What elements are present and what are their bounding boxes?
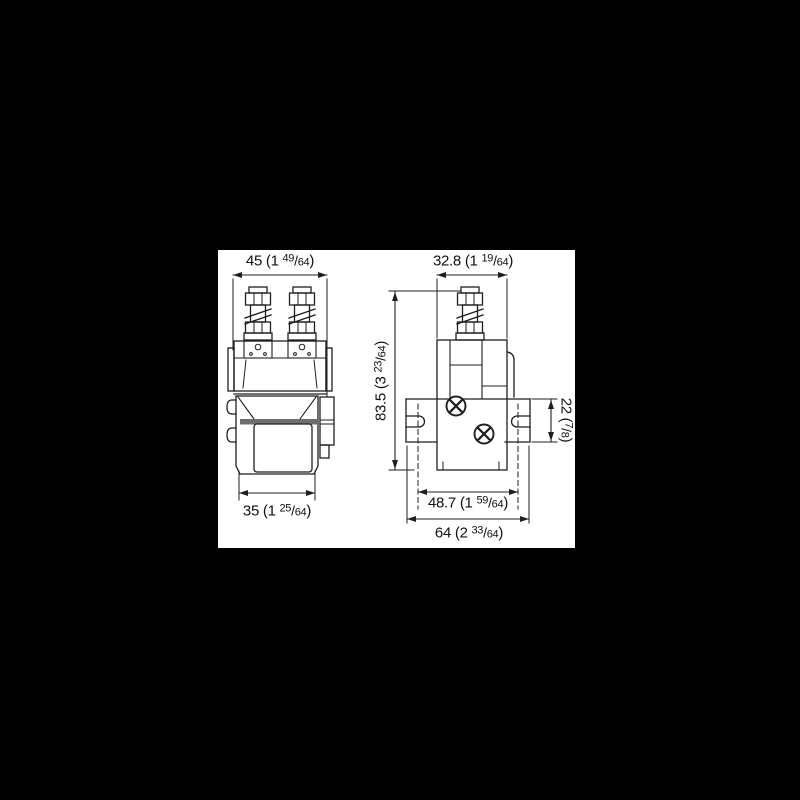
dim-text: 64 (2 — [435, 525, 472, 542]
dim-text: ) — [306, 503, 311, 520]
page-background: 45 (1 49/64) 32.8 (1 19/64) 83.5 (3 23/6… — [0, 0, 800, 800]
fraction-numerator: 7 — [563, 422, 575, 428]
dim-label-bracket-width: 64 (2 33/64) — [435, 526, 503, 541]
dim-text: ) — [373, 341, 390, 346]
dim-text: 22 ( — [558, 398, 575, 423]
fraction-denominator: 64 — [497, 257, 509, 269]
fraction-denominator: 64 — [377, 346, 389, 358]
fraction-numerator: 25 — [279, 503, 291, 515]
slot-right — [512, 416, 531, 427]
fraction-denominator: 64 — [298, 257, 310, 269]
housing — [234, 394, 326, 474]
slot-left — [406, 416, 425, 427]
drawing-panel: 45 (1 49/64) 32.8 (1 19/64) 83.5 (3 23/6… — [218, 250, 575, 548]
fraction-numerator: 19 — [481, 253, 493, 265]
left-bump-top — [227, 400, 236, 414]
terminal-block — [234, 341, 326, 391]
dim-label-side-width-top: 32.8 (1 19/64) — [433, 254, 513, 269]
dim-text: ) — [309, 253, 314, 270]
fraction-numerator: 49 — [282, 253, 294, 265]
dim-text: ) — [498, 525, 503, 542]
mounting-bracket — [406, 399, 530, 442]
side-view — [406, 287, 530, 470]
terminal-stud-left — [244, 287, 272, 340]
fraction-numerator: 59 — [476, 495, 488, 507]
dim-text: 45 (1 — [246, 253, 283, 270]
dim-text: ) — [508, 253, 513, 270]
phillips-screw-icon — [447, 397, 466, 416]
lower-block — [254, 424, 312, 472]
terminal-stud-right — [288, 287, 316, 340]
dim-label-overall-height: 83.5 (3 23/64) — [374, 341, 389, 421]
right-protrusion — [320, 397, 334, 458]
side-strip-left — [228, 348, 234, 391]
front-view — [227, 287, 334, 474]
fraction-numerator: 23 — [373, 361, 385, 373]
dim-text: ) — [558, 438, 575, 443]
dim-text: ) — [503, 495, 508, 512]
fraction-denominator: 64 — [487, 529, 499, 541]
left-bump-bottom — [227, 428, 236, 442]
dim-text: 48.7 (1 — [428, 495, 476, 512]
dimension-lines — [233, 272, 557, 523]
dim-label-front-width-bottom: 35 (1 25/64) — [243, 504, 311, 519]
fraction-denominator: 64 — [295, 507, 307, 519]
dim-label-hole-spacing: 48.7 (1 59/64) — [428, 496, 508, 511]
dim-label-bracket-height: 22 (7/8) — [559, 398, 574, 443]
dim-label-front-width-top: 45 (1 49/64) — [246, 254, 314, 269]
fraction-denominator: 64 — [492, 499, 504, 511]
fraction-numerator: 33 — [471, 525, 483, 537]
terminal-stud-side — [456, 287, 484, 340]
dim-text: 83.5 (3 — [373, 373, 390, 421]
side-tab — [507, 352, 514, 397]
phillips-screw-icon — [475, 425, 494, 444]
dim-text: 32.8 (1 — [433, 253, 481, 270]
dim-text: 35 (1 — [243, 503, 280, 520]
